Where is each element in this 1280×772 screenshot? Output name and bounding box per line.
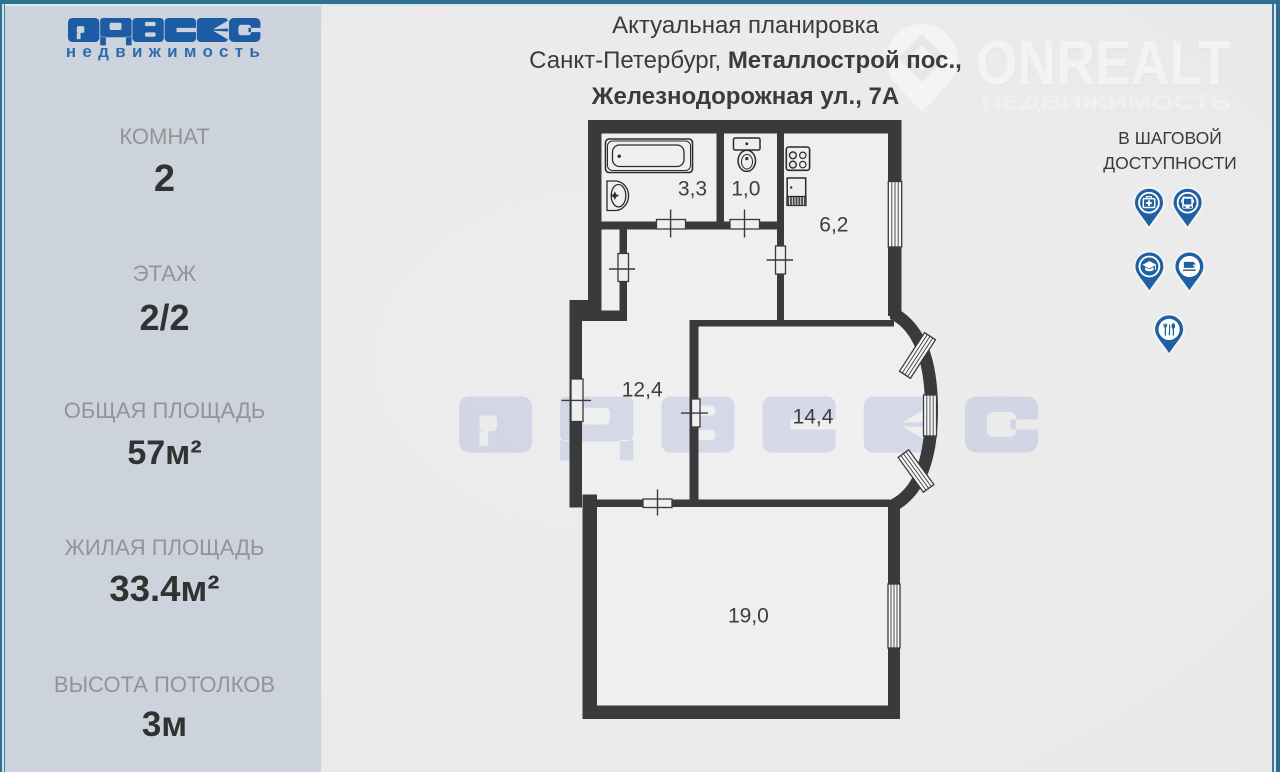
svg-text:19,0: 19,0	[728, 604, 769, 627]
svg-text:1,0: 1,0	[731, 177, 760, 200]
svg-text:недвижимость: недвижимость	[66, 42, 266, 61]
svg-text:12,4: 12,4	[622, 379, 663, 402]
svg-text:14,4: 14,4	[793, 405, 834, 428]
svg-text:6,2: 6,2	[819, 214, 848, 237]
svg-text:3,3: 3,3	[678, 178, 707, 201]
